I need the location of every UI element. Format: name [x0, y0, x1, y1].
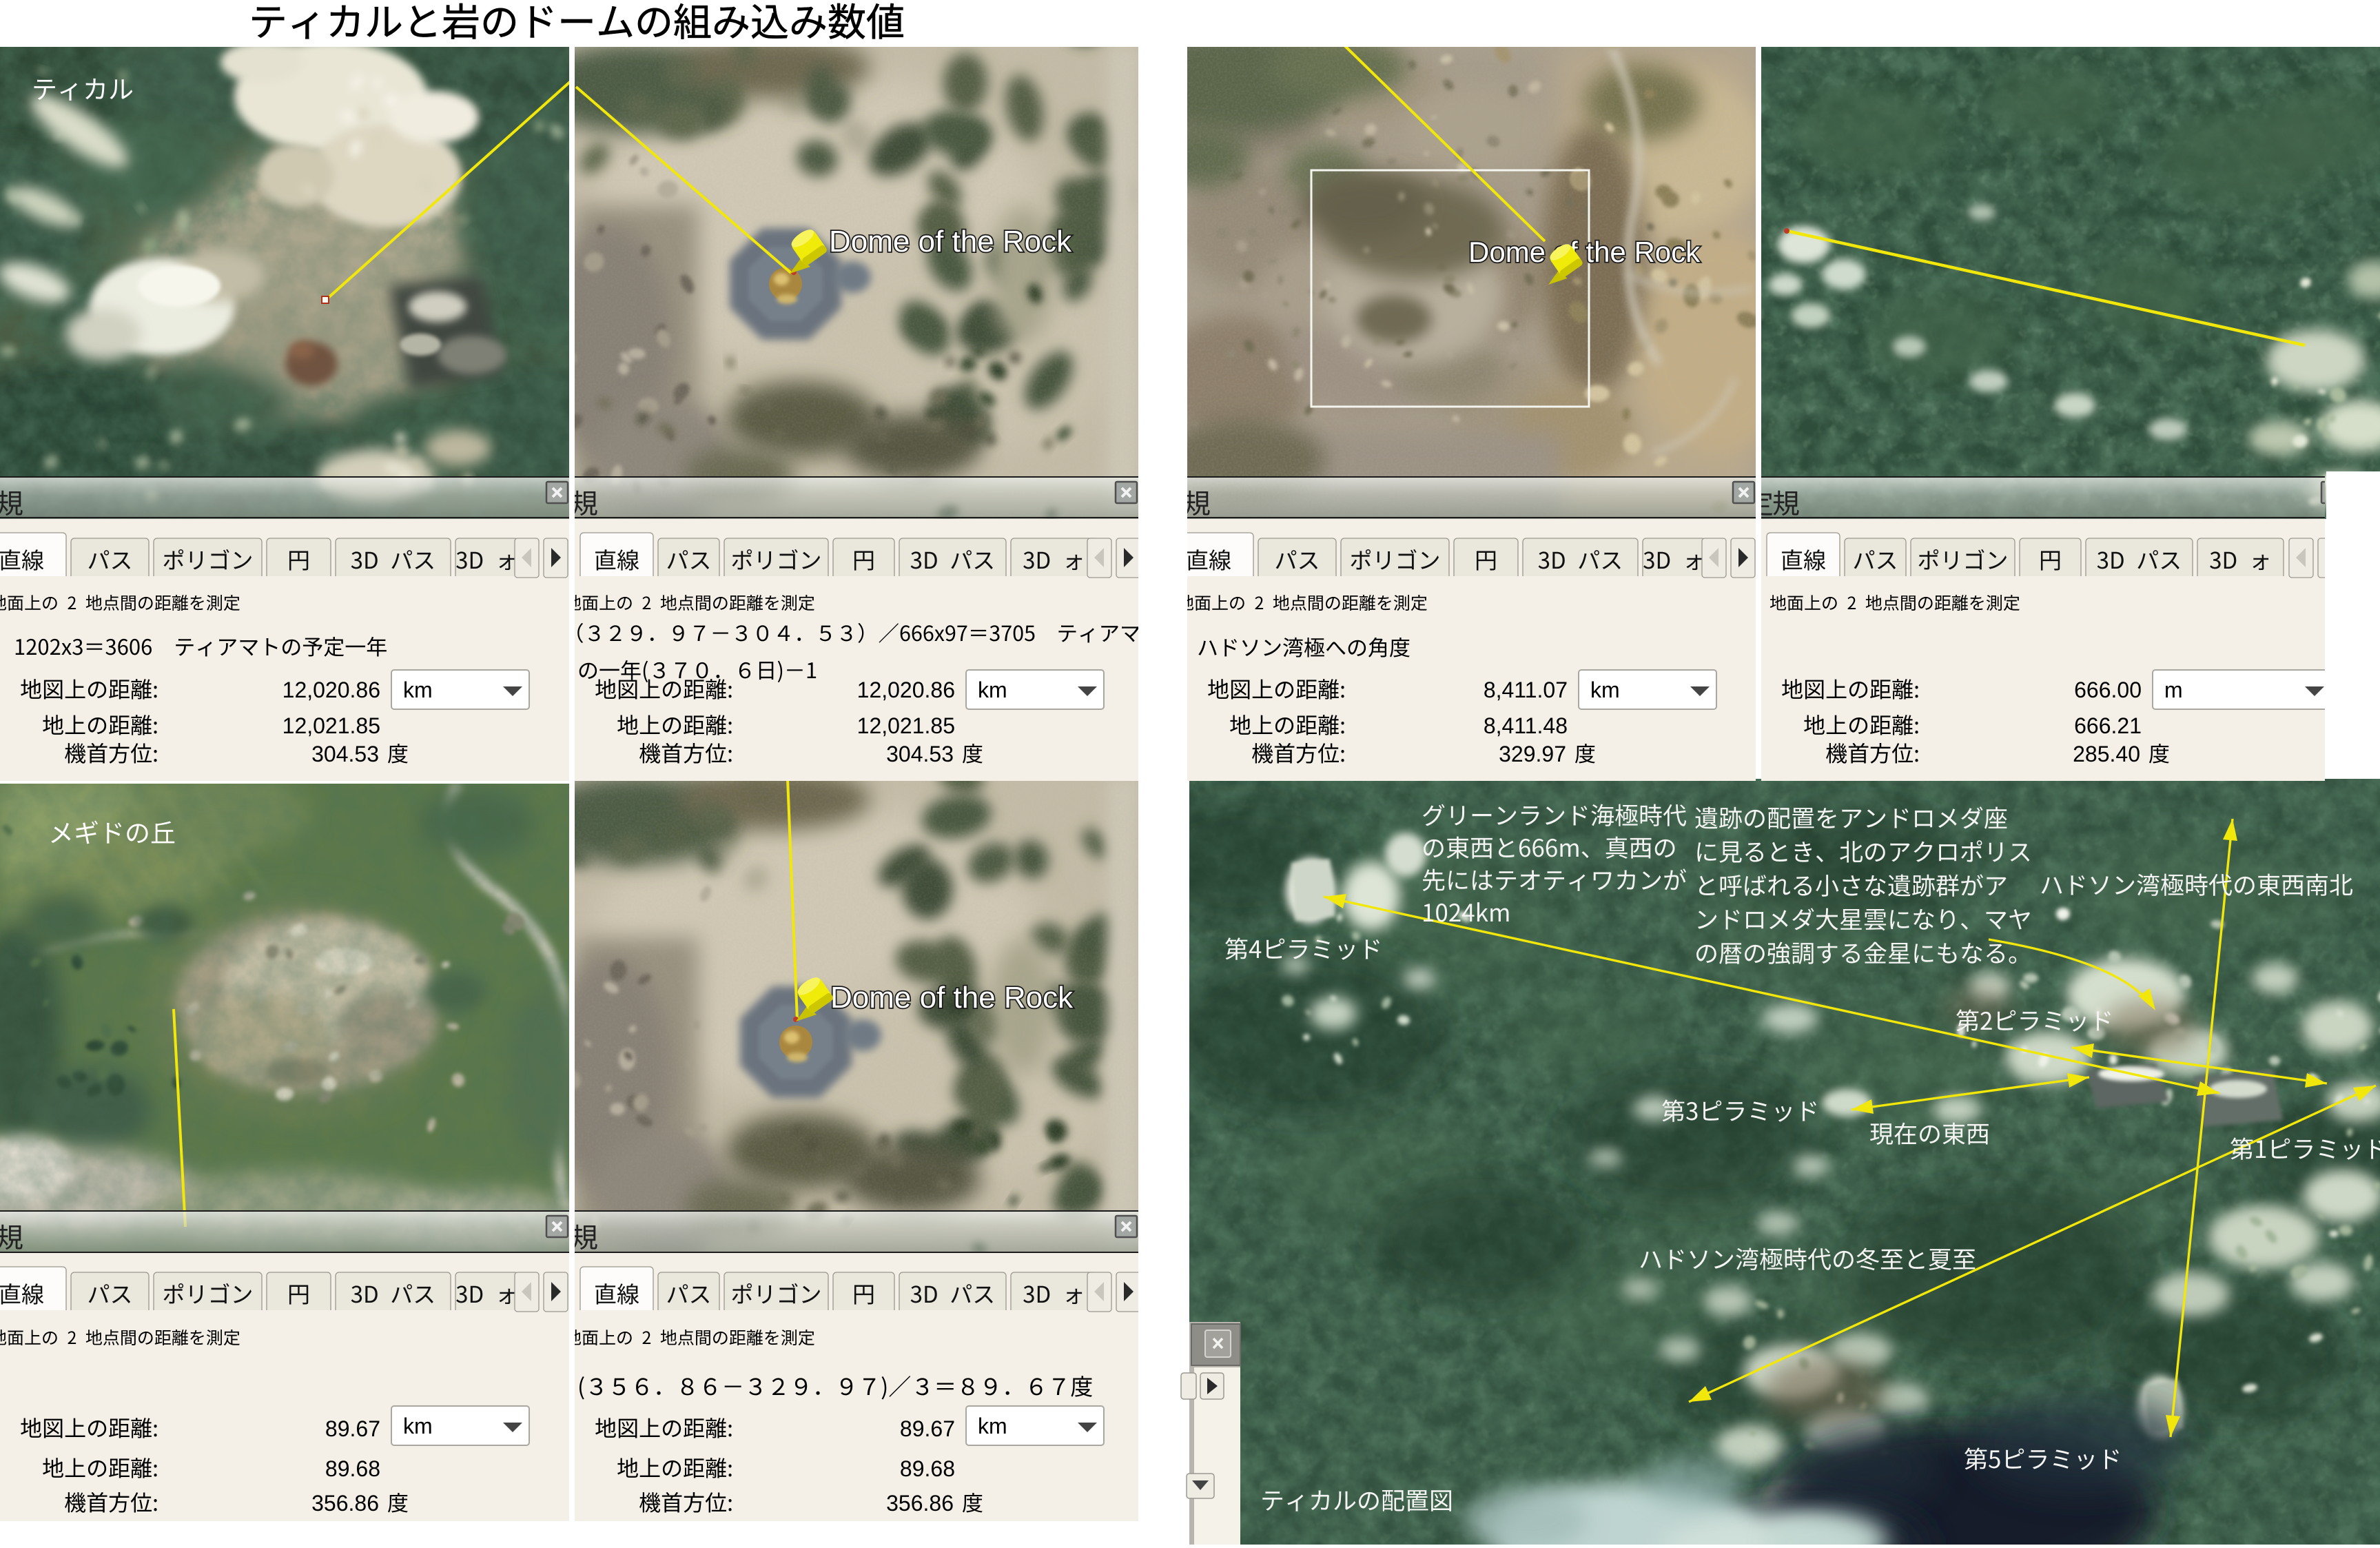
svg-text:89.67: 89.67	[325, 1416, 380, 1441]
svg-text:Dome of the Rock: Dome of the Rock	[830, 981, 1074, 1015]
svg-text:666.00: 666.00	[2074, 678, 2142, 702]
svg-text:12,020.86: 12,020.86	[857, 678, 955, 702]
svg-text:km: km	[403, 1414, 433, 1438]
svg-text:8,411.07: 8,411.07	[1484, 678, 1568, 702]
svg-text:8,411.48: 8,411.48	[1484, 713, 1568, 738]
svg-text:12,020.86: 12,020.86	[283, 678, 380, 702]
svg-text:km: km	[403, 678, 433, 702]
svg-text:km: km	[978, 678, 1007, 702]
svg-text:89.67: 89.67	[900, 1416, 955, 1441]
svg-text:km: km	[1590, 678, 1620, 702]
svg-text:666.21: 666.21	[2074, 713, 2142, 738]
svg-text:12,021.85: 12,021.85	[857, 713, 955, 738]
svg-text:285.40: 285.40	[2073, 742, 2140, 766]
svg-text:Dome of the Rock: Dome of the Rock	[1468, 236, 1701, 268]
svg-text:304.53: 304.53	[311, 742, 379, 766]
svg-text:356.86: 356.86	[311, 1491, 379, 1516]
svg-text:89.68: 89.68	[900, 1456, 955, 1481]
svg-text:12,021.85: 12,021.85	[283, 713, 380, 738]
svg-text:329.97: 329.97	[1499, 742, 1566, 766]
svg-text:km: km	[978, 1414, 1007, 1438]
svg-text:89.68: 89.68	[325, 1456, 380, 1481]
svg-text:304.53: 304.53	[886, 742, 954, 766]
svg-text:m: m	[2164, 678, 2183, 702]
svg-text:Dome of the Rock: Dome of the Rock	[829, 225, 1072, 258]
svg-text:356.86: 356.86	[886, 1491, 954, 1516]
